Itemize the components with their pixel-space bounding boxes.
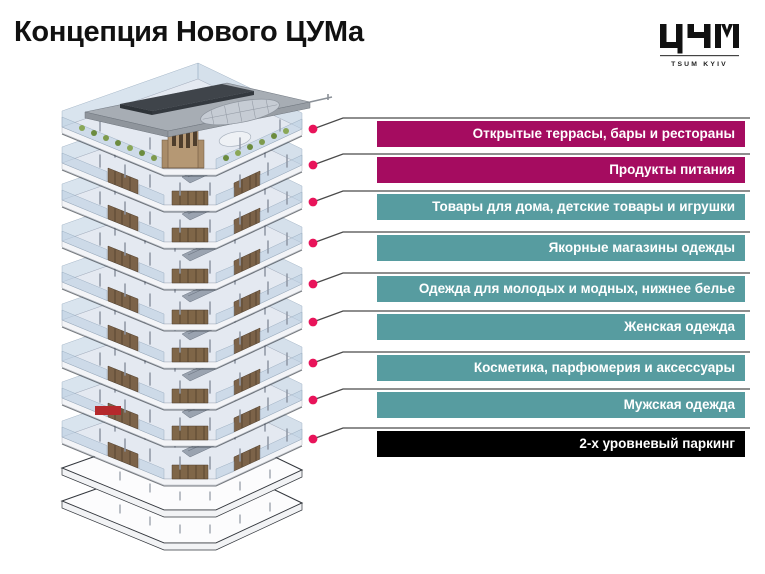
slide: Концепция Нового ЦУМа TSUM KYIV <box>0 0 765 574</box>
floor-label-bar-6: Женская одежда <box>377 314 745 340</box>
tsum-wordmark-icon <box>660 24 739 54</box>
page-title: Концепция Нового ЦУМа <box>14 16 364 49</box>
floor-label-bar-4: Якорные магазины одежды <box>377 235 745 261</box>
floor-label-bar-8: Мужская одежда <box>377 392 745 418</box>
building-exploded-axonometric-illustration <box>40 60 335 552</box>
tsum-logo: TSUM KYIV <box>660 24 740 72</box>
floor-label-bar-7: Косметика, парфюмерия и аксессуары <box>377 355 745 381</box>
floor-label-bar-5: Одежда для молодых и модных, нижнее бель… <box>377 276 745 302</box>
logo-caption: TSUM KYIV <box>671 61 728 68</box>
logo-divider <box>660 55 739 56</box>
floor-label-bar-3: Товары для дома, детские товары и игрушк… <box>377 194 745 220</box>
storefront-sign <box>95 406 121 415</box>
floor-label-bar-9: 2-х уровневый паркинг <box>377 431 745 457</box>
floor-label-bar-2: Продукты питания <box>377 157 745 183</box>
floor-label-bar-1: Открытые террасы, бары и рестораны <box>377 121 745 147</box>
